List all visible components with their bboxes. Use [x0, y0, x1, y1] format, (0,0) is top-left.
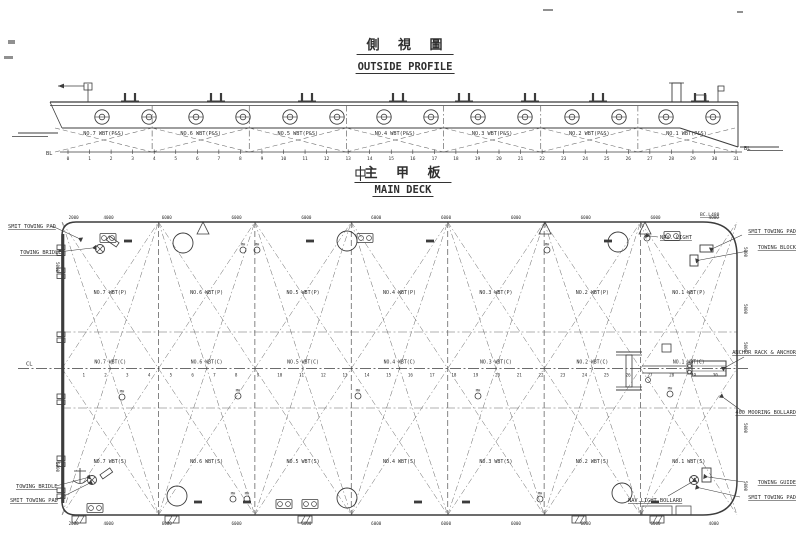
dimension-label-top: 6000 [511, 215, 522, 220]
dimension-label-right: 5000 [743, 481, 748, 492]
circle [97, 506, 102, 511]
rect [302, 500, 318, 509]
dimension-label-top: 6000 [441, 215, 452, 220]
deck-tank-label-p: NO.5 WBT(P) [287, 290, 320, 296]
deck-frame-number: 13 [343, 373, 349, 378]
frame-number: 11 [302, 156, 308, 162]
arrow-icon [58, 84, 64, 89]
frame-number: 5 [174, 156, 177, 162]
deck-tank-label-c: NO.7 WBT(C) [94, 360, 126, 366]
cleat-icon [124, 240, 132, 243]
towing-pad-icon [100, 468, 113, 479]
frame-number: 30 [712, 156, 718, 162]
fairlead-icon [236, 110, 250, 124]
dimension-label-left: 5000 [55, 462, 60, 473]
towing-fitting-icon [96, 245, 105, 254]
deck-frame-number: 15 [386, 373, 392, 378]
leader-line [668, 482, 692, 496]
dimension-label-top: 2000 [69, 215, 80, 220]
rect [276, 500, 292, 509]
callout-bl2: SMIT TOWING PAD [10, 498, 58, 504]
deck-frame-number: 23 [560, 373, 566, 378]
frame-number: 17 [432, 156, 438, 162]
mh-fitting-icon [475, 393, 481, 399]
callout-tr1: SMIT TOWING PAD [748, 229, 796, 235]
mh-fitting-icon [235, 393, 241, 399]
dimension-label-right: 5000 [743, 304, 748, 315]
bitt-icon [589, 93, 607, 101]
deck-frame-number: 14 [364, 373, 370, 378]
frame-number: 31 [733, 156, 739, 162]
mh-fitting-icon [240, 247, 246, 253]
profile-title-cn: 側 視 圖 [356, 38, 453, 55]
deck-frame-number: 20 [495, 373, 501, 378]
fairlead-icon [424, 110, 438, 124]
leader-line [714, 235, 742, 248]
leader-arrow [695, 484, 700, 490]
profile-title-en: OUTSIDE PROFILE [356, 60, 455, 74]
mh-fitting-icon [230, 496, 236, 502]
fairlead-icon [518, 110, 532, 124]
callout-tl2: TOWING BRIDLE [20, 250, 61, 256]
main-deck-drawing: CL12345678910111213141516171819202122232… [0, 212, 800, 549]
leader-line [52, 226, 78, 238]
dimension-label-bottom: 2000 [69, 521, 80, 526]
deck-tank-label-c: NO.6 WBT(C) [191, 360, 223, 366]
manhole-icon [337, 231, 357, 251]
scan-artifact [8, 40, 15, 44]
scan-artifact [737, 11, 743, 13]
circle [312, 502, 317, 507]
fairlead-icon [706, 110, 720, 124]
dimension-label-top: 4000 [104, 215, 115, 220]
fairlead-icon [659, 110, 673, 124]
leader-arrow [709, 246, 715, 253]
mh-fitting-icon [119, 394, 125, 400]
frame-number: 20 [496, 156, 502, 162]
profile-tank-label: NO.6 WBT(P&S) [180, 131, 221, 137]
profile-title: 側 視 圖 OUTSIDE PROFILE [356, 34, 455, 74]
frame-number: 10 [281, 156, 287, 162]
dimension-label-right: 5000 [743, 423, 748, 434]
deck-frame-number: 30 [713, 373, 719, 378]
bitt-icon [389, 93, 407, 101]
bitt-box-icon [302, 500, 318, 509]
cleat-icon [604, 240, 612, 243]
frame-number: 14 [367, 156, 373, 162]
line [575, 516, 579, 523]
rect [626, 355, 632, 387]
deck-frame-number: 2 [104, 373, 107, 378]
frame-number: 2 [110, 156, 113, 162]
frame-number: 12 [324, 156, 330, 162]
fairlead-icon [95, 110, 109, 124]
frame-number: 29 [690, 156, 696, 162]
frame-number: 27 [647, 156, 653, 162]
deck-tank-label-c: NO.3 WBT(C) [480, 360, 512, 366]
deck-tank-label-p: NO.2 WBT(P) [576, 290, 609, 296]
fairlead-icon [612, 110, 626, 124]
bitt-icon [298, 93, 316, 101]
deck-tank-label-c: NO.4 WBT(C) [384, 360, 416, 366]
callout-bl1: TOWING BRIDLE [16, 484, 57, 490]
line [173, 516, 177, 523]
bitt-icon [455, 93, 473, 101]
bl-label-right: BL [744, 146, 750, 152]
frame-number: 16 [410, 156, 416, 162]
mh-label: MH [236, 388, 241, 393]
deck-title-cn: 主 甲 板 [354, 166, 451, 183]
deck-frame-number: 9 [257, 373, 260, 378]
circle [367, 236, 372, 241]
dimension-label-top: 6000 [650, 215, 661, 220]
leader-arrow [703, 474, 708, 480]
stern-rake [50, 102, 62, 128]
fairlead-icon [283, 110, 297, 124]
frame-number: 21 [518, 156, 524, 162]
towing-pad-icon [702, 468, 711, 482]
dimension-label-bottom: 6000 [511, 521, 522, 526]
deck-frame-number: 11 [299, 373, 305, 378]
leader-line [56, 478, 86, 486]
dimension-label-top: 6000 [581, 215, 592, 220]
mh-label: MH [120, 389, 125, 394]
callout-tr_nav: NAV. LIGHT [660, 235, 693, 241]
mh-fitting-icon [667, 391, 673, 397]
deck-frame-number: 7 [213, 373, 216, 378]
frame-number: 15 [389, 156, 395, 162]
fairlead-icon [377, 110, 391, 124]
cleat-icon [194, 501, 202, 504]
fairlead-icon [142, 110, 156, 124]
deck-tank-label-p: NO.7 WBT(P) [94, 290, 127, 296]
bc-ref-label: BC.L480 [700, 212, 720, 218]
frame-number: 1 [88, 156, 91, 162]
deck-frame-number: 17 [430, 373, 436, 378]
deck-frame-number: 6 [191, 373, 194, 378]
deck-frame-number: 25 [604, 373, 610, 378]
fairlead-icon [471, 110, 485, 124]
deck-frame-number: 10 [277, 373, 283, 378]
mh-label: MH [245, 491, 250, 496]
bow-flag-icon [718, 86, 724, 91]
dimension-label-bottom: 6000 [441, 521, 452, 526]
bitt-box-icon [357, 234, 373, 243]
manhole-icon [167, 486, 187, 506]
deck-frame-number: 21 [517, 373, 523, 378]
mh-fitting-icon [355, 393, 361, 399]
dimension-label-bottom: 6000 [162, 521, 173, 526]
deck-tank-label-s: NO.7 WBT(S) [94, 459, 127, 465]
deck-frame-number: 3 [126, 373, 129, 378]
deck-tank-label-s: NO.6 WBT(S) [190, 459, 223, 465]
deck-frame-number: 22 [539, 373, 545, 378]
leader-line [650, 236, 658, 237]
cleat-icon [243, 501, 251, 504]
dimension-label-bottom: 6000 [232, 521, 243, 526]
drawing-sheet: 側 視 圖 OUTSIDE PROFILE NO.7 WBT(P&S)NO.6 … [0, 0, 800, 549]
callout-tr2: TOWING BLOCK [758, 245, 797, 251]
deck-frame-number: 24 [582, 373, 588, 378]
frame-number: 22 [539, 156, 545, 162]
dimension-label-bottom: 4000 [709, 521, 720, 526]
deck-title: 主 甲 板 MAIN DECK [354, 166, 451, 197]
bl-label-left: BL [46, 151, 52, 157]
deck-frame-number: 26 [626, 373, 632, 378]
centerline-label: CL [26, 362, 33, 368]
deck-tank-label-s: NO.3 WBT(S) [479, 459, 512, 465]
mh-fitting-icon [537, 496, 543, 502]
label-box [642, 506, 672, 515]
frame-number: 28 [669, 156, 675, 162]
outside-profile-drawing: NO.7 WBT(P&S)NO.6 WBT(P&S)NO.5 WBT(P&S)N… [0, 78, 800, 166]
mh-label: MH [255, 242, 260, 247]
dimension-label-top: 6000 [301, 215, 312, 220]
fairlead-icon [565, 110, 579, 124]
deck-tank-label-p: NO.1 WBT(P) [672, 290, 705, 296]
leader-arrow [85, 474, 91, 480]
bitt-box-icon [87, 504, 103, 513]
frame-number: 18 [453, 156, 459, 162]
frame-number: 13 [345, 156, 351, 162]
dimension-label-bottom: 6000 [650, 521, 661, 526]
deck-frame-number: 18 [451, 373, 457, 378]
bitt-box-icon [276, 500, 292, 509]
callout-br_nav: NAV.LIGHT BOLLARD [628, 498, 682, 504]
profile-tank-label: NO.4 WBT(P&S) [375, 131, 416, 137]
mast-triangle-icon [539, 222, 551, 234]
leader-line [708, 477, 744, 482]
circle [102, 236, 107, 241]
fairlead-icon [330, 110, 344, 124]
deck-tank-label-p: NO.4 WBT(P) [383, 290, 416, 296]
mh-label: MH [476, 388, 481, 393]
rect [357, 234, 373, 243]
bitt-icon [121, 93, 139, 101]
dimension-label-top: 6000 [232, 215, 243, 220]
winch-icon [616, 352, 686, 390]
profile-tank-label: NO.3 WBT(P&S) [472, 131, 513, 137]
mh-label: MH [241, 242, 246, 247]
cleat-icon [426, 240, 434, 243]
leader-arrow [77, 236, 83, 243]
deck-frame-number: 5 [170, 373, 173, 378]
leader-arrow [691, 478, 697, 485]
circle [89, 506, 94, 511]
callout-tl1: SMIT TOWING PAD [8, 224, 56, 230]
frame-number: 7 [217, 156, 220, 162]
deck-tank-label-c: NO.5 WBT(C) [287, 360, 319, 366]
deck-tank-label-s: NO.1 WBT(S) [672, 459, 705, 465]
profile-tank-label: NO.2 WBT(P&S) [569, 131, 610, 137]
deck-frame-number: 12 [321, 373, 327, 378]
leader-line [56, 484, 88, 500]
circle [278, 502, 283, 507]
line [80, 516, 84, 523]
centerline-symbol [354, 166, 366, 181]
dimension-label-bottom: 4000 [104, 521, 115, 526]
deck-tank-label-c: NO.2 WBT(C) [576, 360, 608, 366]
callout-br2: SMIT TOWING PAD [748, 495, 796, 501]
dimension-label-bottom: 6000 [371, 521, 382, 526]
deck-tank-label-p: NO.6 WBT(P) [190, 290, 223, 296]
rect [87, 504, 103, 513]
dimension-label-right: 5000 [743, 247, 748, 258]
frame-number: 19 [475, 156, 481, 162]
cleat-icon [306, 240, 314, 243]
frame-number: 25 [604, 156, 610, 162]
mh-fitting-icon [544, 247, 550, 253]
bitt-icon [521, 93, 539, 101]
fairlead-icon [189, 110, 203, 124]
frame-number: 8 [239, 156, 242, 162]
scan-artifact [543, 9, 553, 11]
deck-tank-label-p: NO.3 WBT(P) [479, 290, 512, 296]
cleat-icon [462, 501, 470, 504]
leader-arrow [92, 245, 97, 251]
frame-number: 0 [67, 156, 70, 162]
deck-frame-number: 8 [235, 373, 238, 378]
mh-label: MH [231, 491, 236, 496]
frame-number: 3 [131, 156, 134, 162]
deck-frame-number: 4 [148, 373, 151, 378]
dimension-label-left: 5000 [55, 262, 60, 273]
deck-frame-number: 16 [408, 373, 414, 378]
dimension-label-top: 6000 [162, 215, 173, 220]
deck-frame-number: 19 [473, 373, 479, 378]
bitt-icon [207, 93, 225, 101]
frame-number: 23 [561, 156, 567, 162]
frame-number: 6 [196, 156, 199, 162]
mh-label: MH [668, 386, 673, 391]
scan-artifact [4, 56, 13, 59]
mh-label: MH [538, 491, 543, 496]
mast-triangle-icon [197, 222, 209, 234]
profile-tank-label: NO.7 WBT(P&S) [83, 131, 124, 137]
frame-number: 26 [626, 156, 632, 162]
cleat-icon [414, 501, 422, 504]
mh-label: MH [356, 388, 361, 393]
manhole-icon [173, 233, 193, 253]
leader-line [724, 398, 742, 411]
dimension-label-top: 6000 [371, 215, 382, 220]
profile-tank-label: NO.1 WBT(P&S) [666, 131, 707, 137]
profile-tank-label: NO.5 WBT(P&S) [278, 131, 319, 137]
deck-tank-label-s: NO.2 WBT(S) [576, 459, 609, 465]
callout-br1: TOWING GUIDE [758, 480, 796, 486]
frame-number: 24 [582, 156, 588, 162]
mh-label: MH [545, 242, 550, 247]
winch-box-icon [662, 344, 671, 352]
vent-icon [672, 83, 681, 102]
frame-number: 4 [153, 156, 156, 162]
frame-number: 9 [261, 156, 264, 162]
deck-frame-number: 1 [83, 373, 86, 378]
label-box [676, 506, 691, 515]
callout-r2: 400 MOORING BOLLARD [735, 410, 796, 416]
leader-arrow [719, 393, 726, 400]
towing-pad-icon [106, 236, 119, 247]
leader-line [700, 488, 740, 497]
callout-r1: ANCHOR RACK & ANCHOR [732, 350, 797, 356]
deck-title-en: MAIN DECK [373, 183, 434, 197]
circle [286, 502, 291, 507]
deck-tank-label-s: NO.4 WBT(S) [383, 459, 416, 465]
circle [304, 502, 309, 507]
deck-tank-label-s: NO.5 WBT(S) [287, 459, 320, 465]
